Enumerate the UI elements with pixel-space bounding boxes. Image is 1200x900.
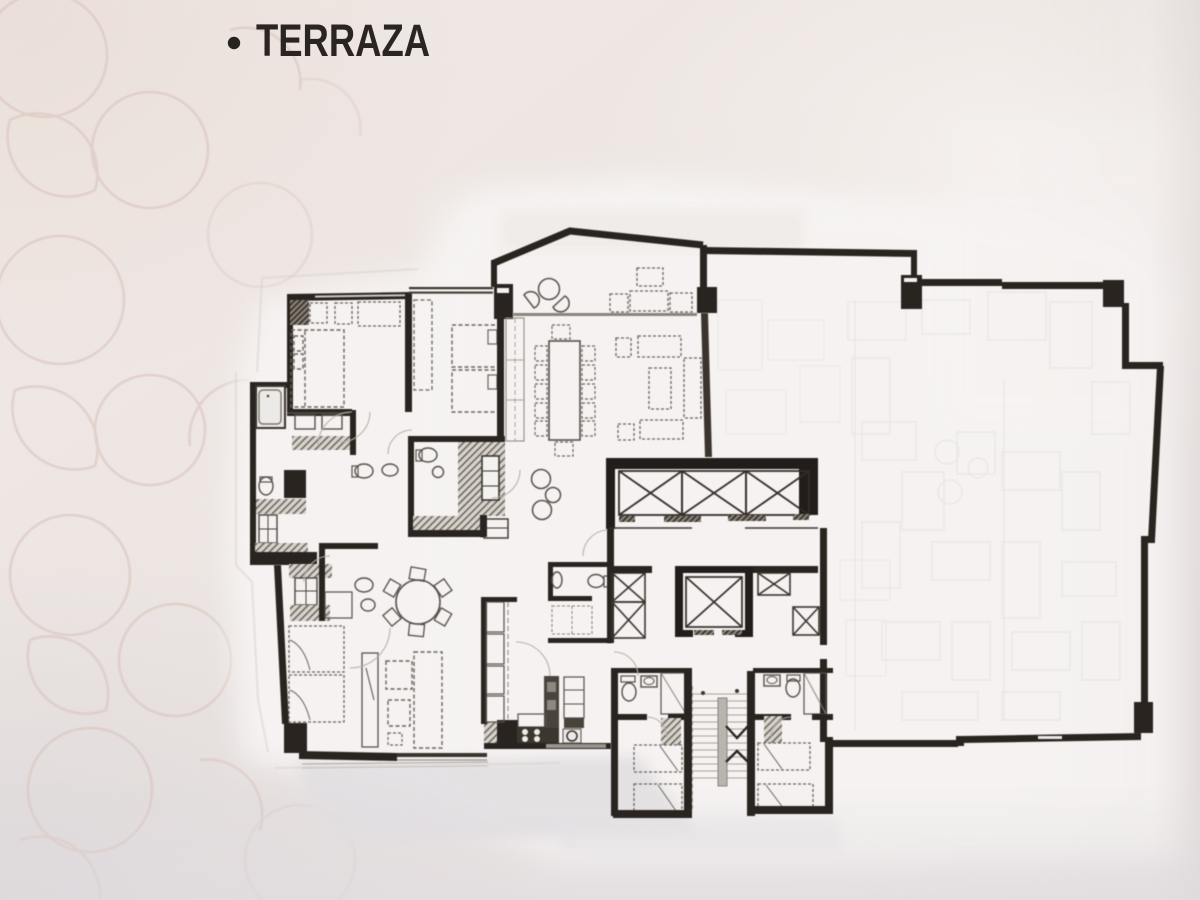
svg-text:TERRAZA: TERRAZA (256, 15, 430, 66)
